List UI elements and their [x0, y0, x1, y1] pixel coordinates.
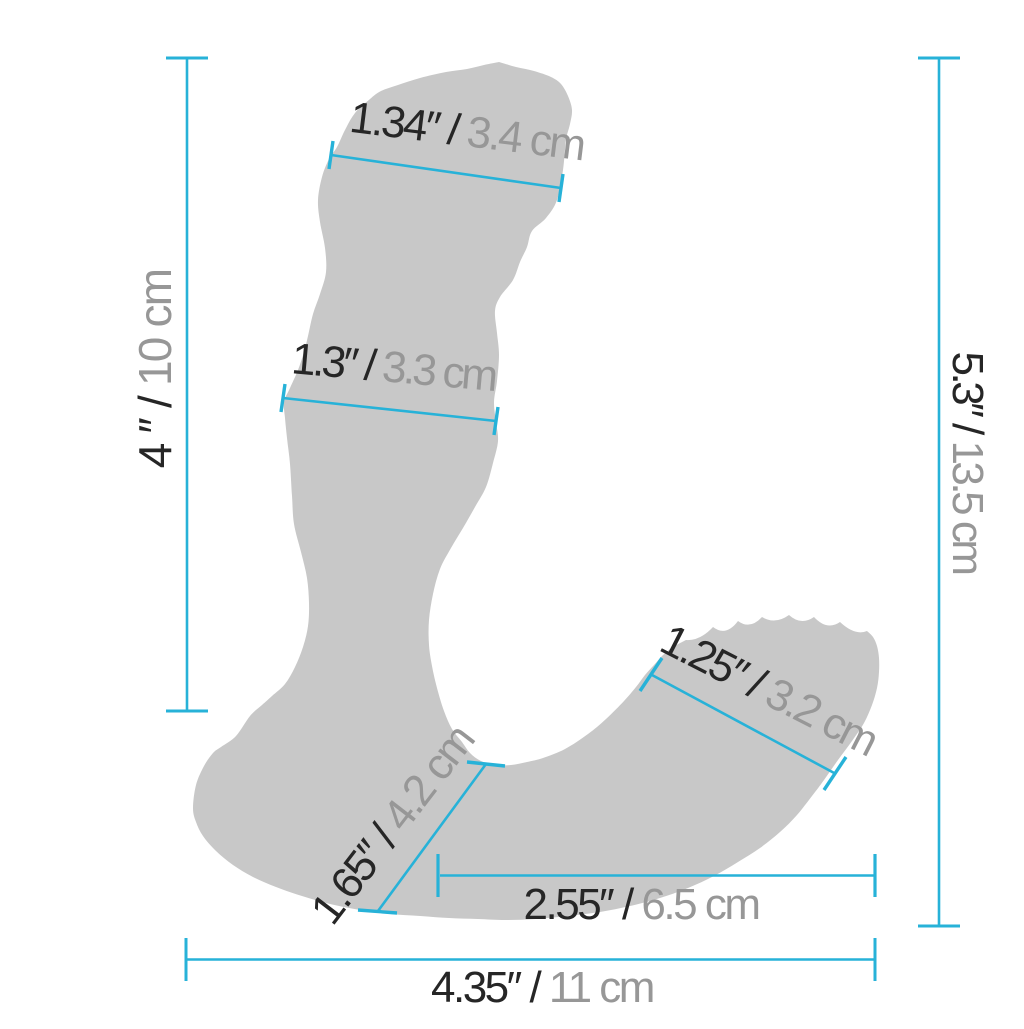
svg-text:4 ″ / 10 cm: 4 ″ / 10 cm: [129, 270, 181, 468]
svg-text:5.3″ / 13.5 cm: 5.3″ / 13.5 cm: [943, 352, 992, 574]
svg-text:2.55″ / 6.5 cm: 2.55″ / 6.5 cm: [524, 880, 759, 929]
svg-text:4.35″ / 11 cm: 4.35″ / 11 cm: [431, 963, 653, 1012]
